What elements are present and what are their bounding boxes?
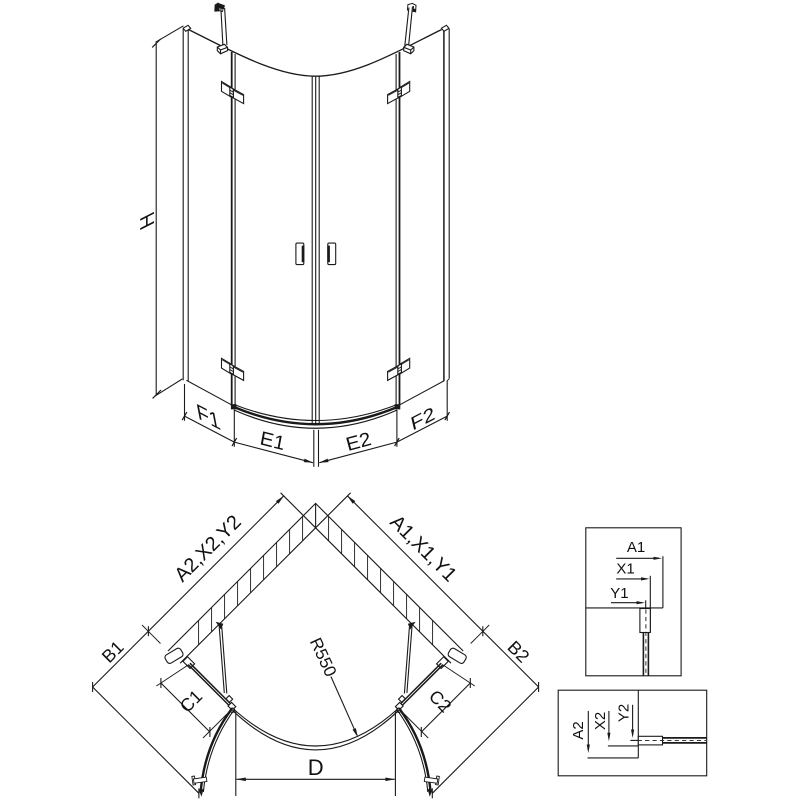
svg-text:Y1: Y1 [610, 585, 628, 602]
svg-text:Y2: Y2 [615, 704, 632, 722]
svg-text:A1: A1 [627, 539, 645, 556]
svg-text:X2: X2 [592, 712, 609, 730]
svg-text:X1: X1 [616, 561, 634, 578]
svg-text:D: D [308, 755, 324, 780]
svg-text:A2: A2 [570, 721, 587, 739]
